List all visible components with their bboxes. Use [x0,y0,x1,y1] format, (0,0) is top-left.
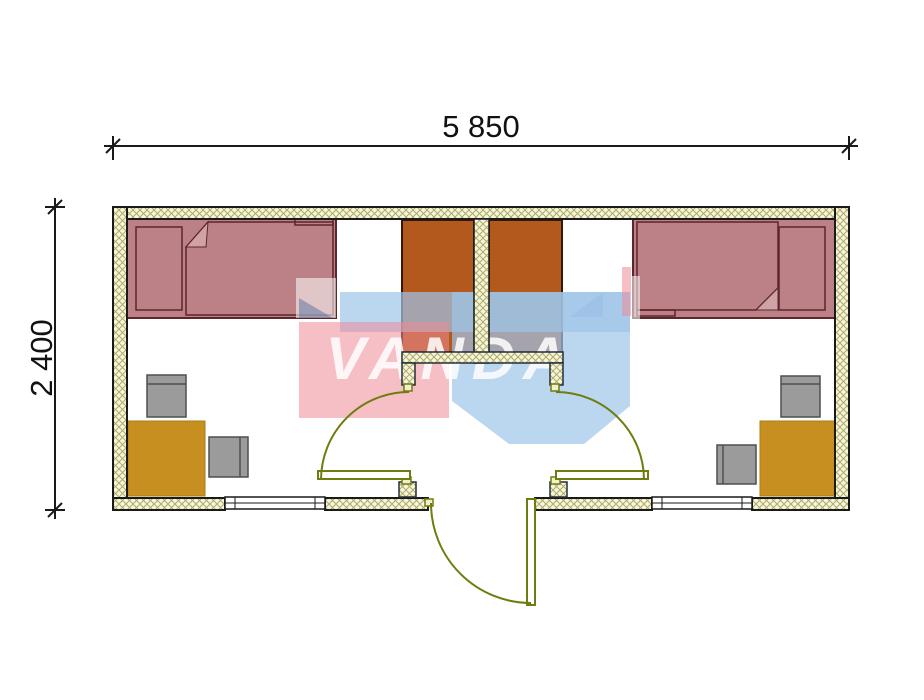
door-leaf-right-room [556,471,648,479]
bed-pillow [779,227,825,310]
watermark-pink-sliver [622,267,631,316]
bed-right [633,219,835,318]
door-leaf-entry [527,499,535,605]
vestibule-wall-top [402,352,563,363]
wall-left [113,207,127,510]
floor-plan-canvas: 5 850 2 400 [0,0,924,700]
dimension-width-label: 5 850 [442,109,520,144]
floor-plan-svg: 5 850 2 400 [0,0,924,700]
wall-bottom-segment [535,498,652,510]
door-jamb-block [551,384,559,391]
window-left [225,497,325,509]
door-leaf-left-room [318,471,410,479]
door-jamb-block [404,384,412,391]
vestibule-wall-right-leg [550,363,563,385]
wall-bottom-segment [752,498,849,510]
window-right [652,497,752,509]
desk-right [760,421,837,496]
vestibule-wall-left-leg [402,363,415,385]
bed-blanket [637,222,778,310]
wall-bottom-segment [325,498,428,510]
bed-pillow [136,227,182,310]
wall-top [113,207,849,219]
dimension-height-label: 2 400 [24,319,59,397]
chair-left-top [147,375,186,417]
chair-right-top [781,376,820,417]
wall-partition [474,219,489,363]
wall-right [835,207,849,510]
desk-left [128,421,205,496]
chair-left-side [209,437,248,477]
wall-bottom-segment [113,498,225,510]
